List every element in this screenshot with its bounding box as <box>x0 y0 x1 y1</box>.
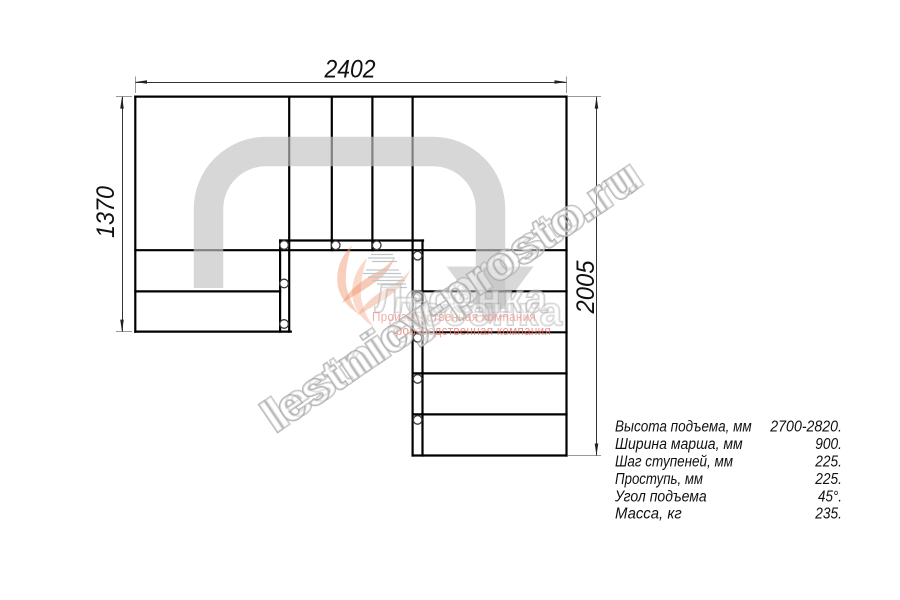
svg-text:Шаг ступеней, мм: Шаг ступеней, мм <box>615 454 733 471</box>
svg-text:1370: 1370 <box>92 186 120 238</box>
svg-text:2005: 2005 <box>572 260 600 314</box>
svg-text:225.: 225. <box>814 471 842 488</box>
svg-text:900.: 900. <box>815 436 842 453</box>
svg-text:225.: 225. <box>814 454 842 471</box>
svg-text:Масса, кг: Масса, кг <box>615 506 682 523</box>
svg-text:Высота подъема, мм: Высота подъема, мм <box>615 419 752 436</box>
svg-text:Угол подъема: Угол подъема <box>614 488 707 505</box>
svg-text:Ширина марша, мм: Ширина марша, мм <box>615 436 743 453</box>
svg-text:Проступь, мм: Проступь, мм <box>615 471 703 488</box>
svg-text:45°.: 45°. <box>818 488 842 505</box>
svg-text:2402: 2402 <box>324 56 376 84</box>
svg-text:2700-2820.: 2700-2820. <box>769 419 842 436</box>
svg-text:235.: 235. <box>814 506 842 523</box>
